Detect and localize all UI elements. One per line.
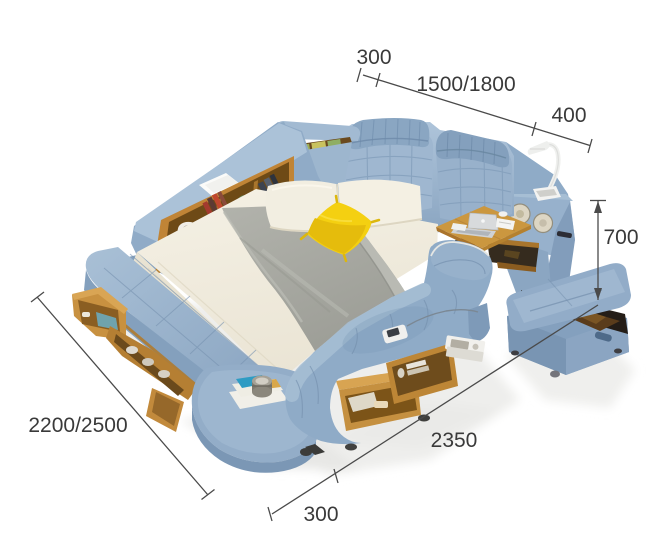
svg-text:300: 300 [303, 503, 338, 526]
svg-text:300: 300 [356, 46, 391, 69]
svg-text:400: 400 [551, 104, 586, 127]
svg-text:1500/1800: 1500/1800 [416, 73, 515, 96]
svg-text:700: 700 [603, 226, 638, 249]
svg-text:2350: 2350 [431, 429, 478, 452]
svg-text:2200/2500: 2200/2500 [28, 414, 127, 437]
